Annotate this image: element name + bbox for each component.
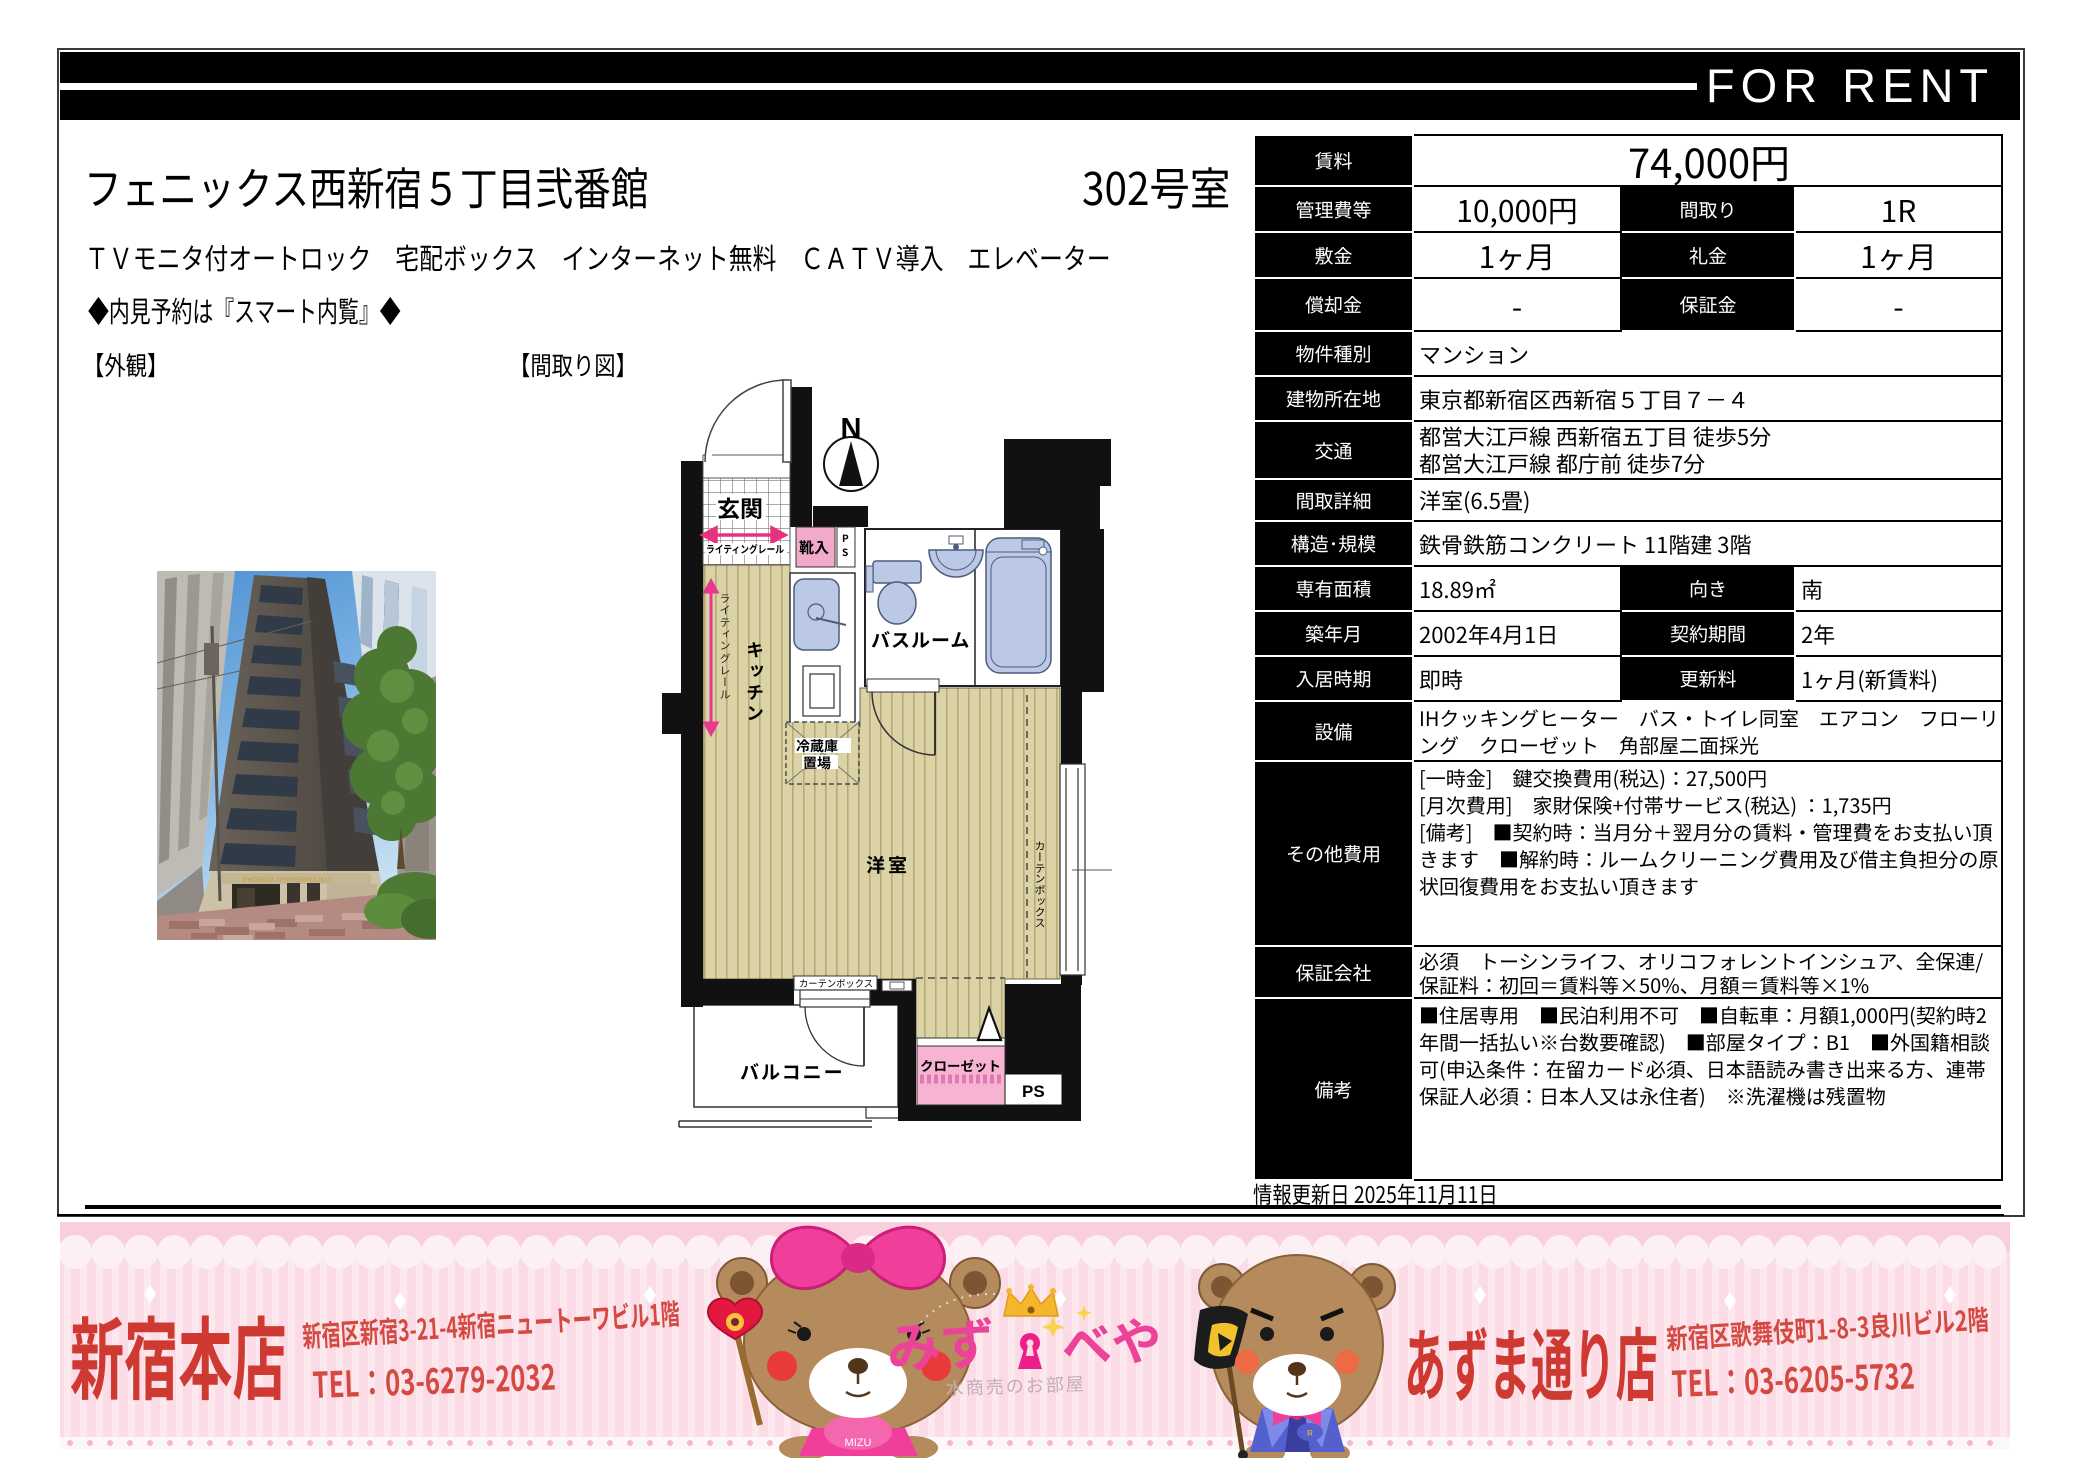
svg-text:あずま通り店: あずま通り店	[1404, 1303, 1658, 1418]
svg-text:TEL：03-6205-5732: TEL：03-6205-5732	[1671, 1347, 1916, 1407]
svg-text:R: R	[1307, 1429, 1313, 1438]
svg-text:みず: みず	[885, 1299, 997, 1384]
svg-text:MIZU: MIZU	[845, 1437, 872, 1449]
svg-text:新宿本店: 新宿本店	[70, 1289, 287, 1419]
svg-text:S: S	[842, 544, 848, 559]
svg-text:ライティングレール: ライティングレール	[717, 592, 733, 700]
svg-text:クローゼット: クローゼット	[920, 1055, 1001, 1075]
svg-text:バスルーム: バスルーム	[871, 626, 970, 653]
svg-text:水商売のお部屋: 水商売のお部屋	[945, 1370, 1086, 1401]
svg-text:玄関: 玄関	[717, 490, 763, 524]
svg-text:カーテンボックス: カーテンボックス	[1032, 840, 1048, 928]
svg-text:靴入: 靴入	[799, 537, 829, 558]
svg-text:P: P	[842, 530, 849, 545]
svg-text:カーテンボックス: カーテンボックス	[799, 975, 873, 990]
svg-text:PS: PS	[1022, 1082, 1045, 1101]
svg-text:PHOENIX NISHISHINJUKU: PHOENIX NISHISHINJUKU	[243, 877, 330, 884]
svg-text:置場: 置場	[803, 753, 831, 773]
svg-text:洋室: 洋室	[866, 851, 910, 878]
svg-text:べや: べや	[1059, 1301, 1164, 1380]
svg-text:N: N	[841, 413, 862, 445]
svg-text:TEL：03-6279-2032: TEL：03-6279-2032	[312, 1348, 557, 1408]
svg-text:ライティングレール: ライティングレール	[706, 542, 784, 557]
svg-text:キッチン: キッチン	[742, 640, 768, 724]
svg-text:バルコニー: バルコニー	[740, 1058, 845, 1085]
